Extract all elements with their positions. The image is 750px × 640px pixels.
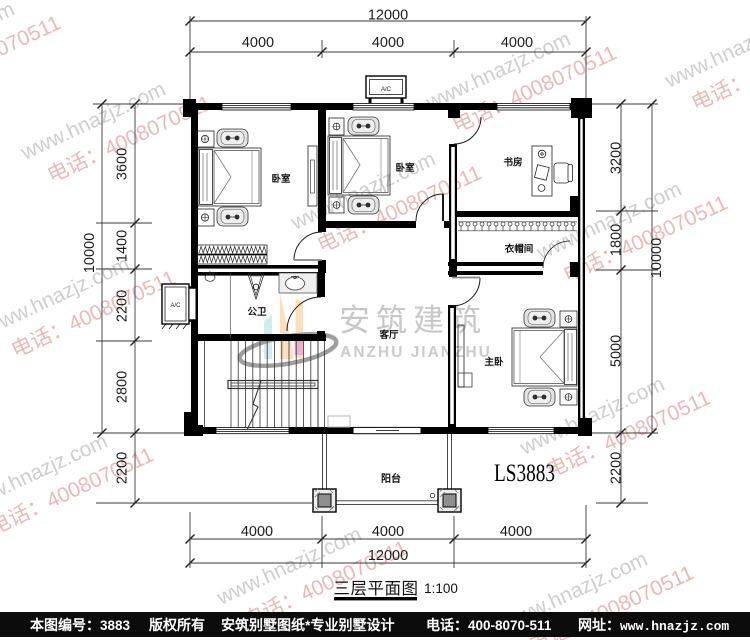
svg-text:版权所有: 版权所有 — [149, 617, 205, 633]
svg-text:4000: 4000 — [372, 35, 404, 51]
svg-text:4000: 4000 — [500, 524, 532, 540]
svg-text:1400: 1400 — [115, 230, 131, 262]
svg-text:3600: 3600 — [115, 148, 131, 180]
svg-text:安筑别墅图纸*专业别墅设计: 安筑别墅图纸*专业别墅设计 — [221, 617, 394, 633]
svg-text:书房: 书房 — [503, 157, 522, 169]
svg-text:A/C: A/C — [381, 87, 392, 93]
svg-text:三层平面图: 三层平面图 — [334, 580, 419, 598]
svg-text:卧室: 卧室 — [271, 173, 291, 185]
svg-text:3200: 3200 — [609, 142, 625, 174]
svg-text:4000: 4000 — [241, 524, 273, 540]
svg-text:安筑建筑: 安筑建筑 — [339, 303, 487, 338]
svg-text:1800: 1800 — [609, 224, 625, 256]
svg-text:衣帽间: 衣帽间 — [505, 243, 534, 255]
svg-text:LS3883: LS3883 — [494, 460, 555, 487]
svg-text:公卫: 公卫 — [247, 307, 267, 318]
svg-text:1:100: 1:100 — [424, 581, 458, 596]
svg-text:2800: 2800 — [115, 371, 131, 403]
svg-text:网址：www.hnazjz.com: 网址：www.hnazjz.com — [578, 617, 729, 634]
svg-text:2200: 2200 — [115, 290, 131, 322]
svg-text:客厅: 客厅 — [378, 329, 399, 341]
svg-text:12000: 12000 — [368, 548, 408, 564]
svg-text:4000: 4000 — [372, 524, 404, 540]
svg-text:主卧: 主卧 — [484, 356, 504, 368]
svg-text:5000: 5000 — [609, 335, 625, 367]
svg-text:电话：400-8070-511: 电话：400-8070-511 — [426, 617, 552, 633]
svg-text:10000: 10000 — [82, 233, 98, 273]
svg-text:10000: 10000 — [649, 238, 665, 278]
svg-text:4000: 4000 — [501, 35, 533, 51]
svg-text:ANZHU JIANZHU: ANZHU JIANZHU — [340, 344, 492, 361]
svg-text:2200: 2200 — [609, 452, 625, 484]
svg-text:12000: 12000 — [368, 8, 408, 24]
svg-text:A/C: A/C — [170, 303, 181, 309]
svg-text:本图编号：3883: 本图编号：3883 — [30, 617, 131, 633]
svg-text:阳台: 阳台 — [381, 472, 401, 485]
svg-text:2200: 2200 — [115, 452, 131, 484]
svg-text:4000: 4000 — [242, 35, 274, 51]
svg-text:卧室: 卧室 — [395, 162, 415, 174]
